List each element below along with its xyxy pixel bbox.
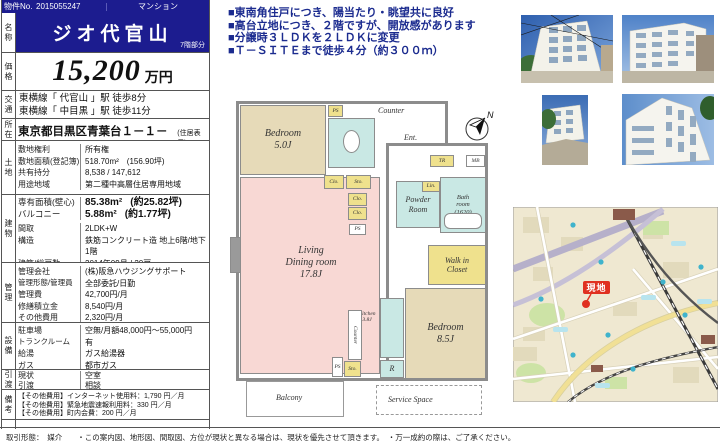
living-size: 17.8J <box>256 269 366 281</box>
access-line-1: 東横線「 代官山 」駅 徒歩8分 <box>16 92 209 105</box>
tr-label: TR <box>439 158 445 164</box>
address-note: (住居表示) <box>177 128 209 140</box>
section-label-price: 価格 <box>2 53 16 90</box>
mgmt-row-label: 管理会社 <box>16 266 80 278</box>
station-block <box>701 335 715 344</box>
section-label-name: 名称 <box>2 13 16 52</box>
sto-label: Sto. <box>354 179 362 185</box>
map-marker-genchi: 現地 <box>583 281 610 294</box>
row-notes: 備考 【その他費用】インターネット使用料：1,790 円／月 【その他費用】緊急… <box>2 390 209 420</box>
price-unit: 万円 <box>145 69 173 86</box>
service-space-label: Service Space <box>388 395 433 404</box>
land-row-value: 8,538 / 147,612 <box>80 167 209 179</box>
fac-row-value: ガス給湯器 <box>80 348 209 360</box>
building-area-label: 専有面積(壁心) <box>16 197 80 209</box>
ps-label: PS <box>334 364 340 370</box>
note-line: 【その他費用】インターネット使用料：1,790 円／月 <box>18 393 209 402</box>
area-note: (約25.82坪) <box>130 197 182 208</box>
linen-box: Lin. <box>422 181 440 192</box>
highlight-line: ■分譲時３ＬＤＫを２ＬＤＫに変更 <box>228 32 514 45</box>
building-row-value: 2LDK+W <box>80 223 209 235</box>
row-management: 管理 管理会社(株)阪急ハウジングサポート 管理形態/管理員全部委託/日勤 管理… <box>2 263 209 323</box>
mgmt-row-value: 42,700円/月 <box>80 289 209 301</box>
room-kitchen <box>380 298 404 358</box>
land-row-value: 518.70m² (156.90坪) <box>80 156 209 168</box>
note-line: 【その他費用】緊急地震速報利用料：330 円／月 <box>18 402 209 411</box>
counter-label: Counter <box>352 326 358 344</box>
hand-row-label: 引渡 <box>16 381 80 390</box>
fac-row-value: 空無/月額48,000円～55,000円 <box>80 325 209 337</box>
ps-box-3: PS <box>332 357 343 377</box>
footer-disclaimer: 取引形態： 媒介 ・この案内図、地形図、間取図、方位が現状と異なる場合は、現状を… <box>0 427 720 442</box>
highlight-line: ■Ｔ－ＳＩＴＥまで徒歩４分（約３００ｍ） <box>228 45 514 58</box>
table-header-row: 物件No. 2015055247 マンション <box>2 0 209 13</box>
bedroom2-size: 8.5J <box>427 334 463 346</box>
balcony-label: Balcony <box>276 393 302 402</box>
storage-box-1: Sto. <box>346 175 371 189</box>
row-price: 価格 15,200 万円 <box>2 53 209 91</box>
compass-n-label: N <box>487 110 494 120</box>
building-area-value: 85.38m²(約25.82坪) <box>80 197 209 209</box>
highlight-bullets: ■東南角住戸につき、陽当たり・眺望共に良好 ■高台立地につき、２階ですが、開放感… <box>228 7 514 57</box>
location-map: 現地 <box>513 207 718 402</box>
property-no-value: 2015055247 <box>36 3 106 11</box>
fac-row-label: ガス <box>16 360 80 370</box>
clo-label: Clo. <box>329 179 338 185</box>
powder-label-2: Room <box>406 205 431 214</box>
building-area-value: 5.88m²(約1.77坪) <box>80 209 209 221</box>
ps-box-2: PS <box>349 224 366 235</box>
counter-label-top: Counter <box>378 106 404 115</box>
hand-row-value: 相談 <box>80 381 209 390</box>
map-canvas <box>513 207 718 402</box>
building-area-label: バルコニー <box>16 209 80 221</box>
property-name-box: ジオ代官山 7階部分 <box>16 13 209 52</box>
building-row-value: 2014年09月 / 20戸 <box>80 258 209 263</box>
wic-label-2: Closet <box>445 265 469 274</box>
property-detail-table: 物件No. 2015055247 マンション 名称 ジオ代官山 7階部分 価格 … <box>1 0 210 429</box>
property-category: マンション <box>106 3 209 11</box>
mgmt-row-label: 管理費 <box>16 289 80 301</box>
room-bedroom-1: Bedroom 5.0J <box>240 105 326 175</box>
closet-box-1: Clo. <box>324 175 344 189</box>
toilet-icon <box>343 130 360 153</box>
area-value: 5.88m² <box>85 209 117 220</box>
section-label-management: 管理 <box>2 263 16 322</box>
row-building: 建物 専有面積(壁心)85.38m²(約25.82坪) バルコニー5.88m²(… <box>2 195 209 263</box>
mb-box: MB <box>466 155 485 167</box>
ps-box-1: PS <box>328 105 343 117</box>
building-row-label: 構造 <box>16 235 80 258</box>
bathtub-icon <box>444 213 482 229</box>
refrigerator-box: R <box>380 360 404 378</box>
row-facilities: 設備 駐車場空無/月額48,000円～55,000円 トランクルーム有 給湯ガス… <box>2 323 209 370</box>
bath-label-2: room <box>454 201 471 208</box>
fac-row-label: 給湯 <box>16 348 80 360</box>
section-label-access: 交通 <box>2 91 16 118</box>
tr-box: TR <box>430 155 454 167</box>
station-block <box>613 209 635 220</box>
building-photo-4 <box>622 94 714 165</box>
living-label: Living Dining room 17.8J <box>256 245 366 281</box>
living-name2: Dining room <box>256 257 366 269</box>
bedroom2-name: Bedroom <box>427 322 463 334</box>
access-line-2: 東横線「 中目黒 」駅 徒歩11分 <box>16 105 209 118</box>
area-note: (約1.77坪) <box>125 209 171 220</box>
address: 東京都目黒区青葉台１－１－４ <box>18 123 174 140</box>
entrance-label: Ent. <box>404 133 417 142</box>
room-walk-in-closet: Walk in Closet <box>428 245 486 285</box>
row-location: 所在 東京都目黒区青葉台１－１－４ (住居表示) <box>2 119 209 141</box>
mgmt-row-value: 全部委託/日勤 <box>80 278 209 290</box>
land-row-value: 所有権 <box>80 144 209 156</box>
property-flyer-page: 物件No. 2015055247 マンション 名称 ジオ代官山 7階部分 価格 … <box>0 0 720 446</box>
row-handover: 引渡 現状空室 引渡相談 <box>2 370 209 390</box>
clo-label: Clo. <box>353 210 362 216</box>
section-label-notes: 備考 <box>2 390 16 419</box>
station-block <box>591 365 603 372</box>
section-label-land: 土地 <box>2 141 16 194</box>
mb-label: MB <box>472 158 480 164</box>
bath-label-1: Bath <box>454 194 471 201</box>
floor-plan: Living Dining room 17.8J Bedroom 5.0J PS… <box>228 85 520 435</box>
mgmt-row-value: (株)阪急ハウジングサポート <box>80 266 209 278</box>
clo-label: Clo. <box>353 196 362 202</box>
closet-box-2: Clo. <box>348 193 367 206</box>
floor-note: 7階部分 <box>180 40 205 50</box>
ps-label: PS <box>332 108 338 114</box>
bedroom1-size: 5.0J <box>265 140 301 152</box>
fac-row-value: 有 <box>80 337 209 349</box>
land-row-label: 敷地面積(登記簿) <box>16 156 80 168</box>
section-label-facilities: 設備 <box>2 323 16 369</box>
building-row-value: 鉄筋コンクリート造 地上6階/地下1階 <box>80 235 209 258</box>
land-row-label: 共有持分 <box>16 167 80 179</box>
property-no-label: 物件No. <box>2 3 36 11</box>
hand-row-label: 現状 <box>16 371 80 381</box>
storage-box-2: Sto. <box>344 361 361 377</box>
counter-box: Counter <box>348 310 362 360</box>
note-line: 【その他費用】町内会費：200 円／月 <box>18 410 209 419</box>
compass-icon: N <box>460 109 496 145</box>
building-photo-1 <box>521 15 613 83</box>
building-row-label: 建築/総戸数 <box>16 258 80 263</box>
fac-row-label: トランクルーム <box>16 337 80 349</box>
highlight-line: ■高台立地につき、２階ですが、開放感があります <box>228 20 514 33</box>
sto-label: Sto. <box>348 366 356 372</box>
mgmt-row-label: その他費用 <box>16 312 80 322</box>
area-value: 85.38m² <box>85 197 122 208</box>
ps-label: PS <box>354 226 360 232</box>
section-label-handover: 引渡 <box>2 370 16 389</box>
lin-label: Lin. <box>427 183 436 189</box>
room-bedroom-2: Bedroom 8.5J <box>405 288 486 379</box>
wic-label-1: Walk in <box>445 256 469 265</box>
powder-label-1: Powder <box>406 195 431 204</box>
mgmt-row-label: 修繕積立金 <box>16 301 80 313</box>
fac-row-label: 駐車場 <box>16 325 80 337</box>
closet-box-3: Clo. <box>348 207 367 220</box>
row-access: 交通 東横線「 代官山 」駅 徒歩8分 東横線「 中目黒 」駅 徒歩11分 <box>2 91 209 119</box>
mgmt-row-label: 管理形態/管理員 <box>16 278 80 290</box>
row-name: 名称 ジオ代官山 7階部分 <box>2 13 209 53</box>
highlight-line: ■東南角住戸につき、陽当たり・眺望共に良好 <box>228 7 514 20</box>
row-land: 土地 敷地権利所有権 敷地面積(登記簿)518.70m² (156.90坪) 共… <box>2 141 209 195</box>
mgmt-row-value: 8,540円/月 <box>80 301 209 313</box>
price-value: 15,200 <box>52 56 141 86</box>
living-name: Living <box>256 245 366 257</box>
hand-row-value: 空室 <box>80 371 209 381</box>
section-label-building: 建物 <box>2 195 16 262</box>
land-row-label: 用途地域 <box>16 179 80 191</box>
building-photo-2 <box>622 15 714 83</box>
section-label-location: 所在 <box>2 119 16 140</box>
property-name: ジオ代官山 <box>52 19 172 46</box>
bedroom1-name: Bedroom <box>265 128 301 140</box>
building-photo-3 <box>542 95 588 165</box>
refrigerator-label: R <box>390 364 395 373</box>
land-row-value: 第二種中高層住居専用地域 <box>80 179 209 191</box>
building-row-label: 間取 <box>16 223 80 235</box>
land-row-label: 敷地権利 <box>16 144 80 156</box>
mgmt-row-value: 2,320円/月 <box>80 312 209 322</box>
fac-row-value: 都市ガス <box>80 360 209 370</box>
